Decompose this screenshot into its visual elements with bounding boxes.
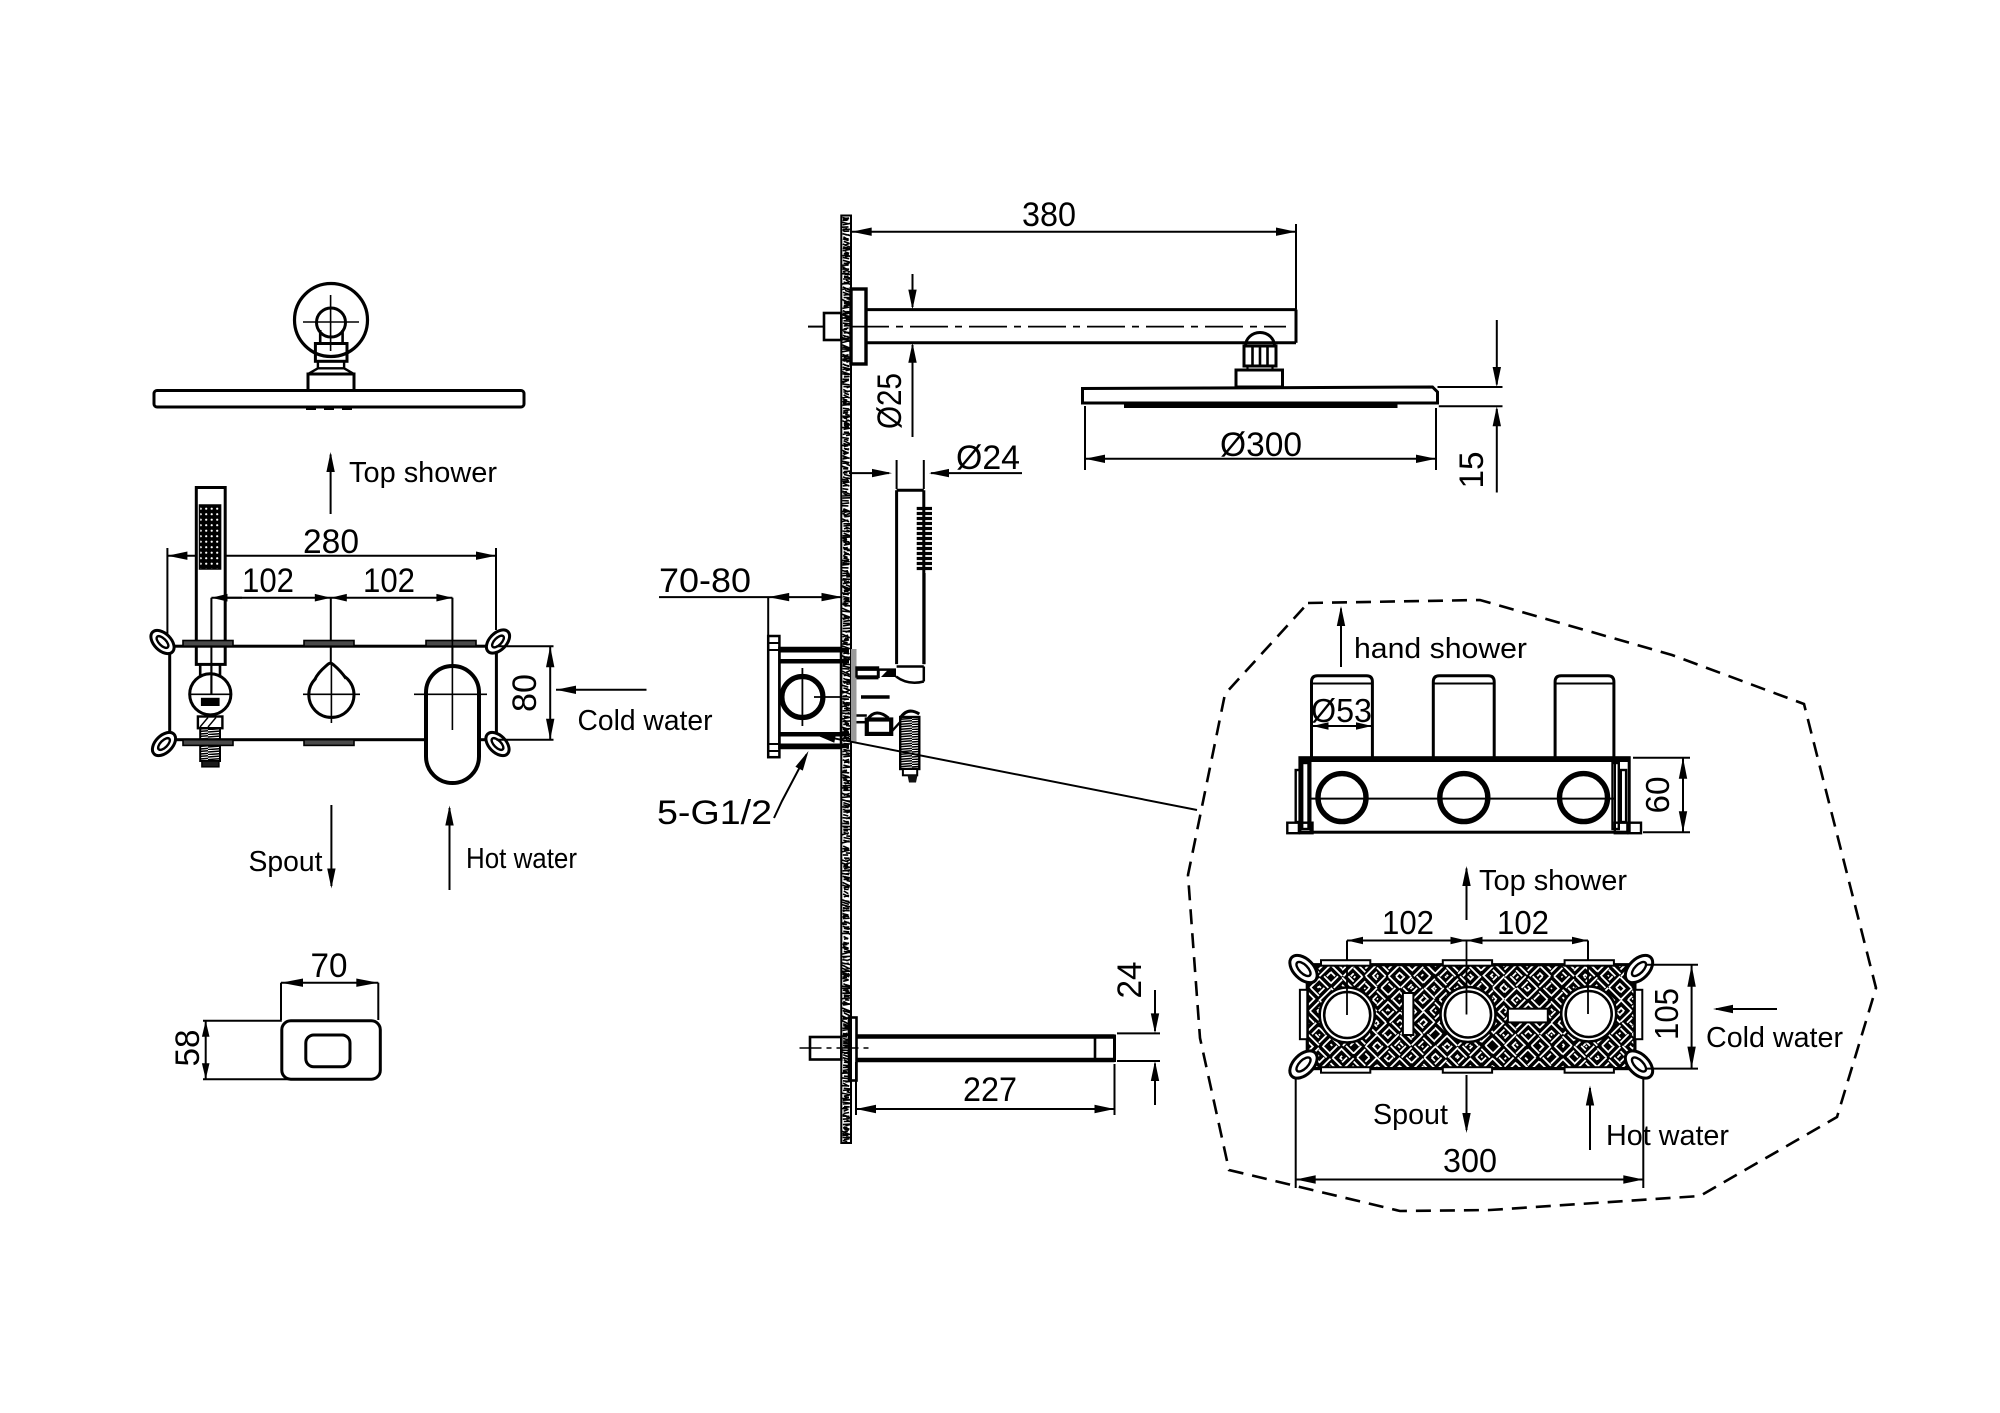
svg-text:105: 105: [1648, 988, 1685, 1040]
svg-text:102: 102: [1497, 904, 1549, 941]
svg-text:227: 227: [963, 1071, 1017, 1109]
svg-text:Top shower: Top shower: [1479, 865, 1627, 897]
svg-text:102: 102: [242, 562, 294, 600]
svg-text:Hot water: Hot water: [466, 843, 577, 875]
svg-text:300: 300: [1443, 1142, 1497, 1179]
svg-text:Ø53: Ø53: [1311, 692, 1372, 729]
svg-text:60: 60: [1639, 777, 1676, 814]
svg-text:380: 380: [1022, 196, 1076, 234]
svg-text:80: 80: [506, 674, 544, 712]
svg-text:58: 58: [169, 1030, 207, 1067]
svg-text:280: 280: [303, 523, 359, 561]
svg-text:hand shower: hand shower: [1354, 633, 1527, 665]
svg-text:102: 102: [1382, 904, 1434, 941]
svg-text:Ø300: Ø300: [1220, 426, 1302, 464]
svg-text:70: 70: [311, 947, 348, 985]
svg-text:102: 102: [363, 562, 415, 600]
svg-text:Top shower: Top shower: [349, 457, 497, 489]
svg-text:24: 24: [1111, 962, 1149, 999]
svg-text:5-G1/2: 5-G1/2: [657, 794, 772, 832]
svg-text:Cold water: Cold water: [1706, 1022, 1843, 1054]
svg-text:15: 15: [1453, 452, 1491, 489]
svg-text:Ø25: Ø25: [871, 373, 909, 429]
svg-text:Ø24: Ø24: [956, 439, 1020, 477]
svg-text:Spout: Spout: [1373, 1099, 1448, 1131]
svg-text:70-80: 70-80: [659, 562, 751, 600]
svg-text:Spout: Spout: [249, 846, 323, 878]
svg-text:Hot water: Hot water: [1606, 1120, 1729, 1152]
svg-text:Cold water: Cold water: [578, 705, 713, 737]
